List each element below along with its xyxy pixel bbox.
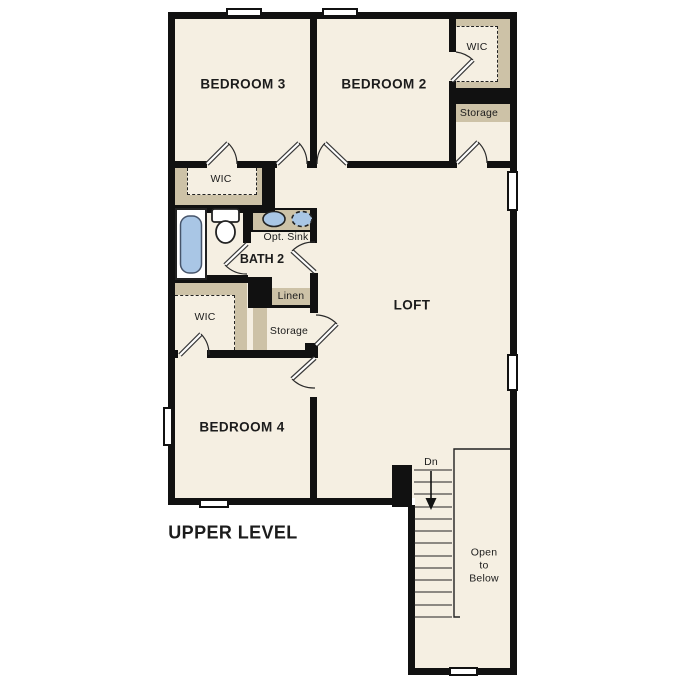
wall [168,205,275,213]
wall [510,12,517,675]
wic-bedroom4-band-right [235,283,247,353]
wall [449,12,456,52]
label-open-to-below: Open to Below [469,547,499,586]
wall [449,88,517,104]
wall [408,505,415,675]
window [507,354,518,391]
storage-loft-band [253,308,267,352]
wall [267,305,310,308]
room-label-loft: LOFT [394,298,431,313]
room-label-bedroom2: BEDROOM 2 [341,77,426,92]
wall [262,161,275,213]
floor-plan-canvas: BEDROOM 3 BEDROOM 2 BEDROOM 4 LOFT BATH … [0,0,687,687]
wall [207,350,318,358]
wall [248,277,272,308]
closet-label-wic-bedroom4: WIC [194,311,215,323]
wall [310,273,318,313]
room-label-bedroom3: BEDROOM 3 [200,77,285,92]
closet-label-storage-loft: Storage [270,325,308,337]
window [199,499,229,508]
label-opt-sink: Opt. Sink [264,231,309,243]
wall [310,208,317,243]
label-stairs-down: Dn [424,456,438,468]
closet-label-wic-bedroom2: WIC [466,41,487,53]
wall [310,12,317,168]
wall [307,161,317,168]
wall [347,161,457,168]
wall [310,397,317,498]
wall [487,161,517,168]
room-label-bedroom4: BEDROOM 4 [199,420,284,435]
wic-bedroom2-shelf-outline [452,26,498,82]
closet-label-wic-bedroom3: WIC [210,173,231,185]
window [507,171,518,211]
wall [168,350,178,358]
page-title: UPPER LEVEL [168,523,297,544]
window [322,8,358,17]
wall [168,161,207,168]
window [449,667,478,676]
window [163,407,173,446]
closet-label-storage-bedroom2: Storage [460,107,498,119]
wall [168,275,248,283]
closet-label-linen: Linen [278,290,305,302]
wall [243,208,251,243]
wall [392,465,412,507]
window [226,8,262,17]
room-label-bath2: BATH 2 [240,252,284,266]
